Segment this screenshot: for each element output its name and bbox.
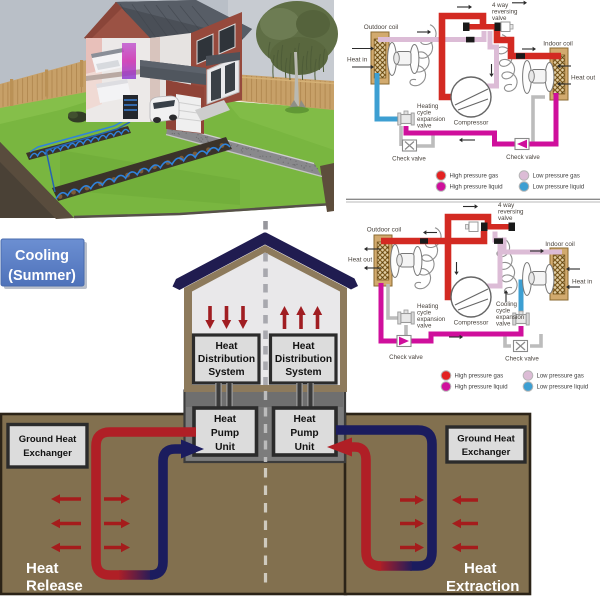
svg-text:Check valve: Check valve [389,354,423,361]
svg-text:System: System [285,367,321,378]
svg-text:Heat: Heat [464,560,497,577]
svg-text:Compressor: Compressor [454,320,490,327]
svg-text:Distribution: Distribution [275,354,332,365]
svg-text:Ground Heat: Ground Heat [19,434,77,445]
svg-text:Outdoor coil: Outdoor coil [364,24,398,31]
svg-text:Ground Heat: Ground Heat [457,434,515,445]
svg-text:High pressure liquid: High pressure liquid [455,385,508,391]
svg-text:Indoor coil: Indoor coil [543,41,573,48]
svg-text:High pressure liquid: High pressure liquid [450,185,503,191]
svg-text:Exchanger: Exchanger [23,448,72,459]
svg-text:Unit: Unit [215,442,235,453]
svg-text:Heat: Heat [26,560,59,577]
svg-text:Compressor: Compressor [454,120,490,127]
svg-text:Low pressure gas: Low pressure gas [533,174,580,180]
svg-text:Low pressure liquid: Low pressure liquid [537,385,589,391]
svg-text:(Summer): (Summer) [8,268,76,284]
svg-text:Low pressure gas: Low pressure gas [537,374,584,380]
svg-text:Low pressure liquid: Low pressure liquid [533,185,585,191]
svg-text:Unit: Unit [295,442,315,453]
svg-text:Heat in: Heat in [572,279,593,286]
svg-text:Heat: Heat [214,414,237,425]
svg-text:valve: valve [496,321,511,328]
svg-text:valve: valve [417,123,432,130]
svg-text:Pump: Pump [211,428,239,439]
svg-text:Extraction: Extraction [446,578,519,595]
svg-text:Exchanger: Exchanger [462,447,511,458]
svg-text:Heat in: Heat in [347,57,368,64]
svg-text:Distribution: Distribution [198,354,255,365]
svg-text:Heat: Heat [293,414,316,425]
svg-text:Heat: Heat [292,341,315,352]
svg-text:Check valve: Check valve [505,356,539,363]
svg-text:Heat out: Heat out [348,257,372,264]
svg-text:valve: valve [417,323,432,330]
svg-text:Heat out: Heat out [571,75,595,82]
svg-text:Cooling: Cooling [15,248,69,264]
svg-text:valve: valve [492,15,507,22]
svg-text:Release: Release [26,578,83,595]
svg-text:Indoor coil: Indoor coil [545,241,575,248]
svg-text:Check valve: Check valve [392,156,426,163]
svg-text:Pump: Pump [290,428,318,439]
svg-text:valve: valve [498,215,513,222]
svg-text:Heat: Heat [215,341,238,352]
svg-text:Check valve: Check valve [506,154,540,161]
svg-text:High pressure gas: High pressure gas [450,174,499,180]
svg-text:Outdoor coil: Outdoor coil [367,227,401,234]
svg-text:System: System [208,367,244,378]
svg-text:High pressure gas: High pressure gas [455,374,504,380]
